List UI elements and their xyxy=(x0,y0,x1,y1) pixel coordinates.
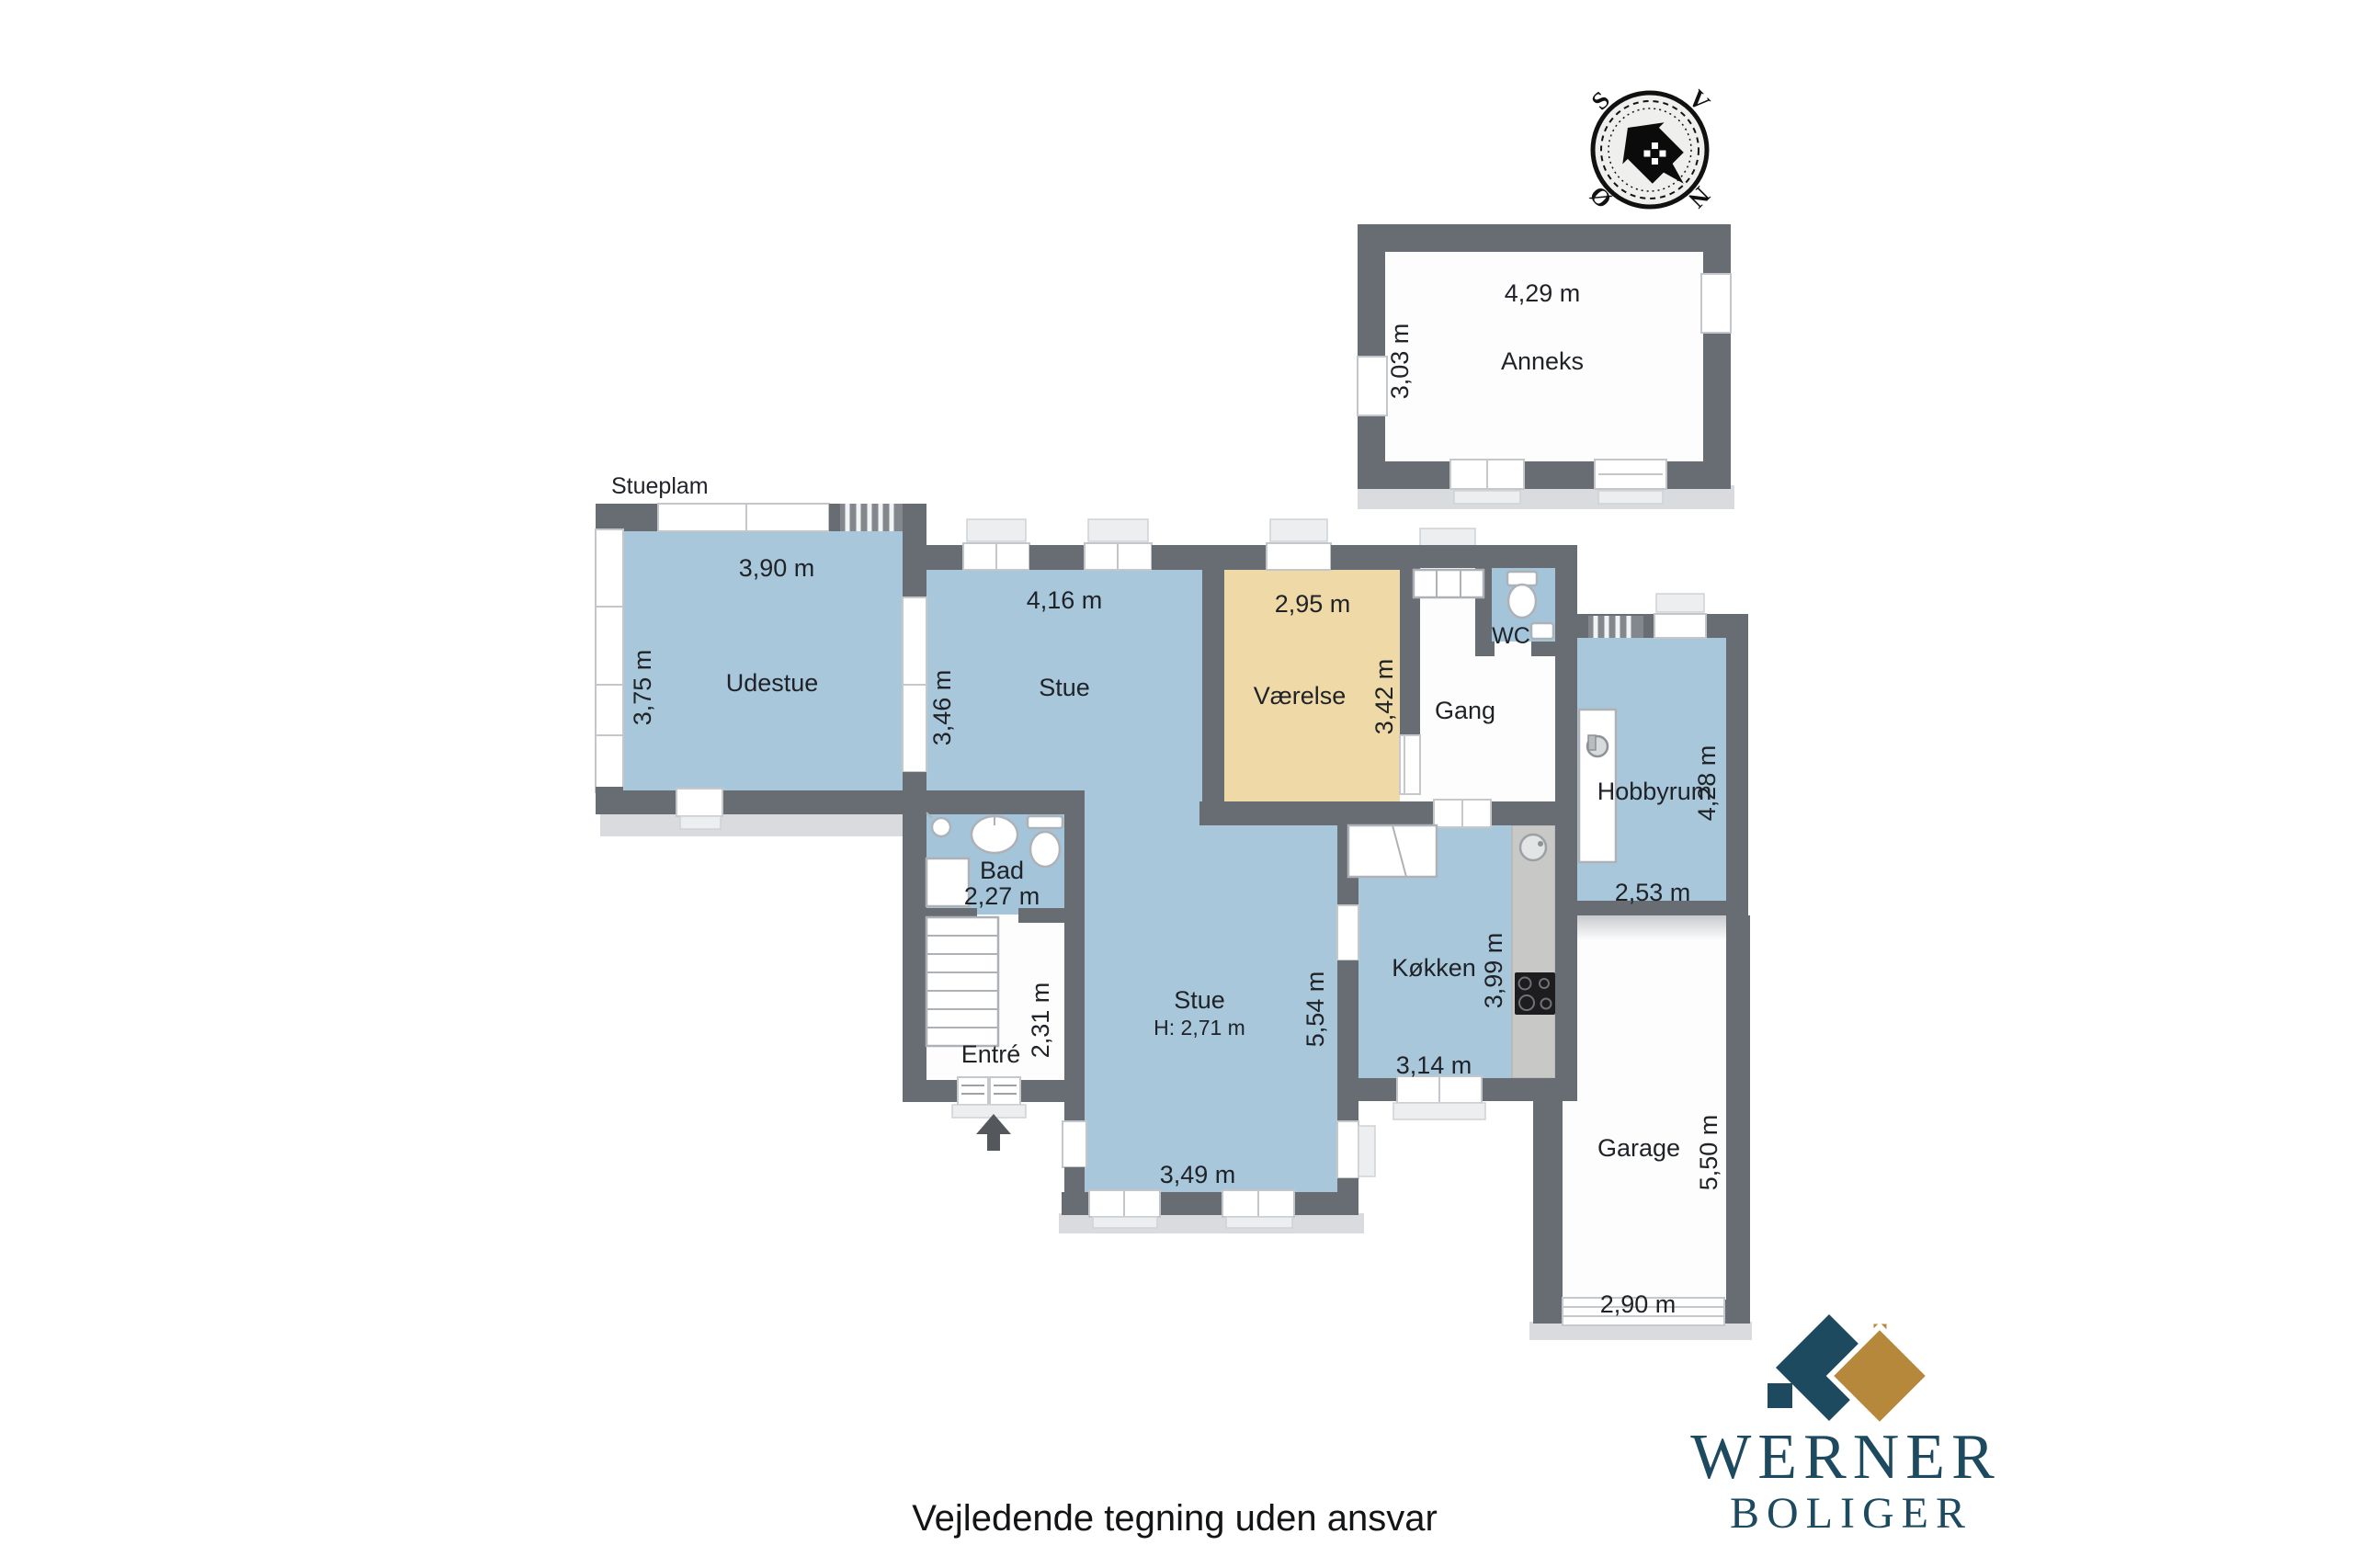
toilet-icon xyxy=(1507,572,1537,618)
stue-terrace-door xyxy=(1337,1121,1358,1178)
room-stue2-depth-label: 5,54 m xyxy=(1302,971,1329,1048)
room-anneks-label: Anneks xyxy=(1501,347,1584,375)
louvre-window xyxy=(840,504,903,531)
room-entre-depth-label: 2,31 m xyxy=(1027,983,1054,1059)
room-bad-width-label: 2,27 m xyxy=(964,882,1040,910)
logo-mark-icon xyxy=(1768,1314,1929,1426)
kitchen-cabinet xyxy=(1348,825,1437,877)
entry-arrow-icon xyxy=(976,1114,1011,1151)
vaerelse-door xyxy=(1400,735,1420,794)
toilet-icon xyxy=(1028,816,1063,867)
room-stue2-ceiling-label: H: 2,71 m xyxy=(1154,1016,1245,1040)
logo-wordmark: WERNER xyxy=(1690,1422,2001,1493)
room-anneks: 4,29 m Anneks 3,03 m xyxy=(1358,224,1734,509)
room-wc-label: WC xyxy=(1492,623,1530,649)
wc-sink-icon xyxy=(1531,623,1553,639)
werner-boliger-logo: WERNER BOLIGER xyxy=(1690,1314,2001,1538)
room-stue-depth-label: 3,46 m xyxy=(928,670,956,746)
kitchen-counter xyxy=(1512,825,1555,1078)
floor-plan-page: Stueplam N S Ø V 4,29 m Anneks xyxy=(0,0,2353,1568)
garage-threshold xyxy=(1563,915,1731,941)
room-koekken-width-label: 3,14 m xyxy=(1396,1051,1472,1079)
compass-rose-icon: N S Ø V xyxy=(1584,85,1715,214)
floor-plan-svg: Stueplam N S Ø V 4,29 m Anneks xyxy=(0,0,2353,1568)
room-stue2-width-label: 3,49 m xyxy=(1160,1161,1236,1188)
wardrobe-icon xyxy=(1414,570,1483,597)
disclaimer-text: Vejledende tegning uden ansvar xyxy=(912,1498,1438,1539)
room-vaerelse-label: Værelse xyxy=(1254,682,1347,710)
room-koekken-depth-label: 3,99 m xyxy=(1480,933,1507,1009)
room-vaerelse-depth-label: 3,42 m xyxy=(1370,659,1398,735)
stove-icon xyxy=(1515,972,1555,1015)
room-bad-label: Bad xyxy=(980,857,1024,884)
logo-subtitle: BOLIGER xyxy=(1730,1489,1972,1538)
room-stue-width-label: 4,16 m xyxy=(1027,586,1103,614)
front-door xyxy=(952,1077,1026,1118)
room-udestue-depth-label: 3,75 m xyxy=(629,650,656,726)
room-garage-width-label: 2,90 m xyxy=(1600,1290,1677,1318)
bath-cabinet xyxy=(926,858,969,906)
room-udestue-width-label: 3,90 m xyxy=(739,554,815,582)
room-entre-label: Entré xyxy=(961,1040,1021,1068)
room-garage-depth-label: 5,50 m xyxy=(1695,1115,1722,1191)
room-stue2-label: Stue xyxy=(1174,986,1225,1014)
room-anneks-depth-label: 3,03 m xyxy=(1386,324,1414,400)
room-gang-label: Gang xyxy=(1435,697,1495,724)
stue-koekken-door xyxy=(1337,905,1358,960)
kitchen-sink-icon xyxy=(1520,835,1546,860)
room-anneks-width-label: 4,29 m xyxy=(1505,279,1581,307)
room-garage-label: Garage xyxy=(1597,1134,1680,1162)
bad-sink-icon xyxy=(972,816,1017,853)
front-step xyxy=(1420,528,1475,547)
room-stue-label: Stue xyxy=(1039,674,1090,701)
room-udestue-label: Udestue xyxy=(726,669,819,697)
plan-title: Stueplam xyxy=(611,473,709,499)
room-hobbyrum-width-label: 2,53 m xyxy=(1615,879,1691,906)
room-vaerelse-width-label: 2,95 m xyxy=(1275,590,1351,618)
louvre-window xyxy=(1588,616,1643,638)
room-hobbyrum-depth-label: 4,28 m xyxy=(1693,745,1721,822)
outdoor-walkway xyxy=(600,812,913,836)
stairs-icon xyxy=(926,917,998,1046)
room-koekken-label: Køkken xyxy=(1392,954,1476,982)
